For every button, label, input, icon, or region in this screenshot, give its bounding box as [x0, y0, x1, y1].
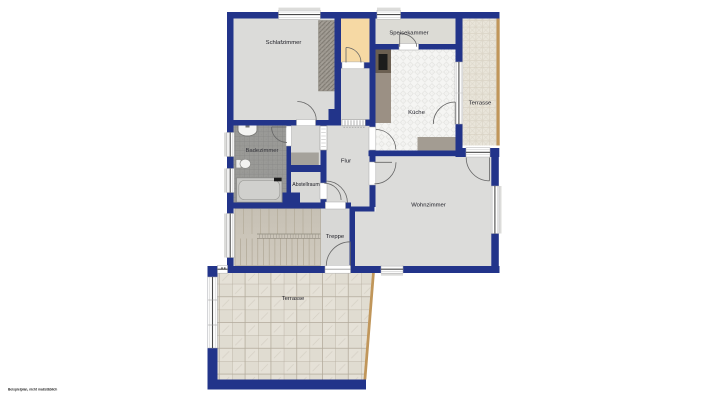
- svg-text:Speisekammer: Speisekammer: [389, 31, 428, 37]
- svg-text:Beispielplan, nicht maßstäblic: Beispielplan, nicht maßstäblich: [8, 388, 57, 392]
- svg-text:Badezimmer: Badezimmer: [245, 148, 278, 154]
- svg-text:Küche: Küche: [408, 110, 425, 116]
- svg-text:Abstellraum: Abstellraum: [292, 182, 319, 188]
- svg-text:Treppe: Treppe: [326, 234, 345, 240]
- svg-text:Flur: Flur: [341, 159, 351, 165]
- svg-text:Wohnzimmer: Wohnzimmer: [411, 202, 446, 208]
- svg-text:Terrasse: Terrasse: [282, 296, 305, 302]
- svg-text:Schlafzimmer: Schlafzimmer: [266, 40, 302, 46]
- svg-text:Terrasse: Terrasse: [469, 101, 492, 107]
